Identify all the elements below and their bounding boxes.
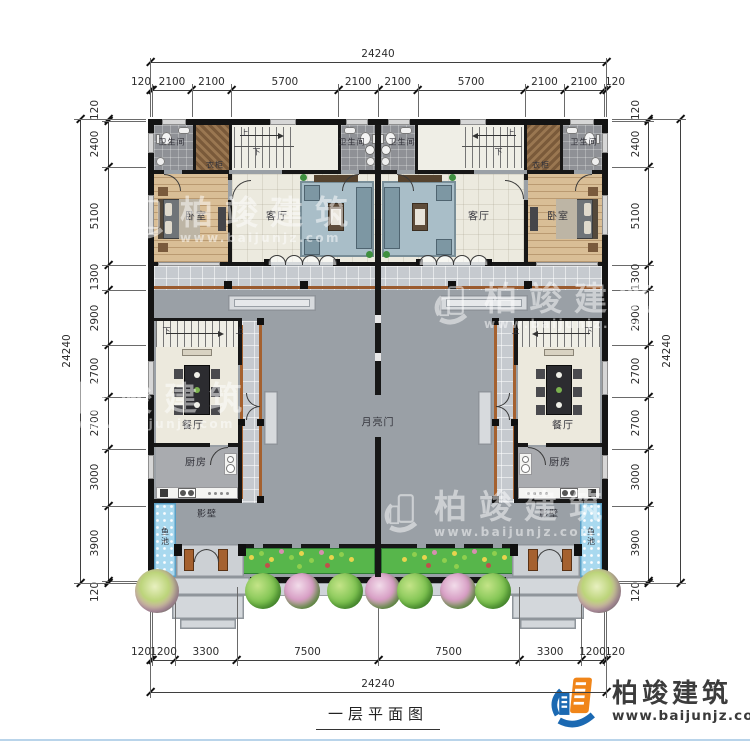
stair-arrow bbox=[166, 333, 218, 334]
extension-line bbox=[612, 583, 686, 584]
wall bbox=[524, 174, 528, 180]
dim-label: 3000 bbox=[630, 464, 642, 491]
extension-line bbox=[564, 84, 565, 117]
overall-dim-label: 24240 bbox=[661, 334, 673, 367]
room-label: 卧室 bbox=[185, 208, 207, 223]
room-label: 下 bbox=[253, 147, 262, 158]
wall bbox=[182, 170, 229, 174]
room-label: 上 bbox=[236, 326, 245, 337]
dwelling-unit bbox=[378, 125, 602, 577]
extension-line bbox=[102, 290, 146, 291]
side-wall-window bbox=[148, 361, 154, 395]
dim-label: 120 bbox=[630, 100, 642, 120]
dim-label: 120 bbox=[605, 646, 625, 658]
wall bbox=[514, 425, 518, 503]
dim-label: 2100 bbox=[384, 76, 411, 88]
dining-chair bbox=[211, 405, 220, 415]
wall bbox=[232, 262, 268, 266]
extension-line bbox=[102, 449, 146, 450]
veranda-column bbox=[448, 281, 456, 289]
plant bbox=[449, 174, 456, 181]
garden-strip bbox=[381, 548, 517, 574]
dim-label: 120 bbox=[630, 582, 642, 602]
extension-line bbox=[612, 119, 686, 120]
extension-line bbox=[74, 119, 146, 120]
bedroom-south-window bbox=[536, 262, 598, 266]
dim-label: 2700 bbox=[630, 409, 642, 436]
bush bbox=[284, 573, 320, 609]
room-label: 鱼池 bbox=[160, 527, 171, 547]
sink bbox=[344, 127, 356, 134]
brand-logo: 柏竣建筑 www.baijunjz.com bbox=[548, 672, 750, 732]
room-label: 月亮门 bbox=[362, 414, 395, 429]
dining-chair bbox=[211, 369, 220, 379]
room-label: 餐厅 bbox=[182, 417, 204, 432]
stair-arrowhead bbox=[532, 331, 538, 337]
overall-dim-label: 24240 bbox=[361, 678, 394, 690]
wall bbox=[415, 125, 418, 170]
wall bbox=[592, 170, 602, 174]
stair-rail bbox=[234, 146, 294, 147]
dining-chair bbox=[211, 387, 220, 397]
room-label: 上 bbox=[241, 128, 250, 139]
sofa-main bbox=[356, 187, 372, 249]
gate-jamb bbox=[238, 544, 246, 556]
dim-label: 120 bbox=[131, 646, 151, 658]
room-label: 客厅 bbox=[468, 208, 490, 223]
dim-label: 2900 bbox=[89, 304, 101, 331]
extension-line bbox=[102, 345, 146, 346]
dim-label: 2700 bbox=[89, 358, 101, 385]
dim-label: 120 bbox=[131, 76, 151, 88]
wall bbox=[338, 125, 341, 170]
dining-chair bbox=[536, 369, 545, 379]
dim-label: 2400 bbox=[630, 131, 642, 158]
dwelling-unit bbox=[154, 125, 378, 577]
armchair bbox=[304, 239, 320, 255]
dining-chair bbox=[174, 387, 183, 397]
bush bbox=[475, 573, 511, 609]
wall bbox=[154, 170, 164, 174]
dining-chair bbox=[174, 405, 183, 415]
burner bbox=[570, 490, 576, 496]
stair-arrowhead bbox=[218, 331, 224, 337]
counter-dots bbox=[208, 492, 211, 495]
corridor-column bbox=[257, 419, 264, 426]
room-label: 卫生间 bbox=[339, 137, 366, 148]
washing-machine bbox=[591, 157, 600, 166]
dim-label: 5100 bbox=[630, 203, 642, 230]
wall bbox=[154, 318, 242, 321]
dim-label: 1200 bbox=[150, 646, 177, 658]
extension-line bbox=[102, 121, 146, 122]
dim-label: 3900 bbox=[89, 530, 101, 557]
top-wall-window bbox=[270, 119, 296, 125]
pillow bbox=[165, 203, 172, 216]
room-label: 卧室 bbox=[547, 208, 569, 223]
wall bbox=[488, 262, 524, 266]
armchair bbox=[436, 239, 452, 255]
overall-dim-line bbox=[150, 62, 606, 63]
dim-label: 2400 bbox=[89, 131, 101, 158]
gate-column bbox=[562, 549, 572, 571]
wall bbox=[282, 170, 341, 174]
dim-label: 2100 bbox=[198, 76, 225, 88]
plant bbox=[383, 251, 390, 258]
plate bbox=[194, 372, 200, 378]
veranda-beam bbox=[378, 286, 602, 289]
burner bbox=[188, 490, 194, 496]
room-label: 餐厅 bbox=[552, 417, 574, 432]
bush bbox=[327, 573, 363, 609]
overall-dim-label: 24240 bbox=[361, 48, 394, 60]
extension-line bbox=[102, 265, 146, 266]
extension-line bbox=[150, 58, 151, 117]
brand-url: www.baijunjz.com bbox=[612, 708, 750, 724]
dining-chair bbox=[174, 369, 183, 379]
kitchen-counter bbox=[156, 487, 238, 499]
wall bbox=[228, 200, 232, 262]
plate bbox=[556, 387, 562, 393]
dim-label: 2100 bbox=[159, 76, 186, 88]
veranda-column bbox=[224, 281, 232, 289]
plate bbox=[556, 372, 562, 378]
drawing-title: 一层平面图 bbox=[316, 703, 440, 730]
bedroom-south-window bbox=[158, 262, 220, 266]
dim-label: 7500 bbox=[294, 646, 321, 658]
washbasin bbox=[365, 145, 375, 155]
dim-label: 2100 bbox=[345, 76, 372, 88]
overall-dim-line bbox=[80, 119, 81, 583]
garden-strip bbox=[239, 548, 375, 574]
room-label: 衣柜 bbox=[532, 160, 550, 171]
dining-hutch bbox=[182, 349, 212, 356]
top-wall-window bbox=[570, 119, 594, 125]
room-label: 厨房 bbox=[185, 454, 207, 469]
bush bbox=[397, 573, 433, 609]
watermark-icon bbox=[22, 383, 64, 429]
tv-cabinet bbox=[530, 207, 538, 231]
dimension-line bbox=[648, 119, 649, 583]
room-label: 卫生间 bbox=[571, 137, 598, 148]
room-label: 下 bbox=[585, 326, 594, 337]
side-wall-window bbox=[148, 195, 154, 235]
extension-line bbox=[418, 84, 419, 117]
room-label: 卫生间 bbox=[159, 137, 186, 148]
top-wall-window bbox=[346, 119, 368, 125]
corridor-bench bbox=[264, 391, 278, 445]
dining-chair bbox=[536, 387, 545, 397]
wall bbox=[378, 262, 420, 266]
side-wall-window bbox=[602, 133, 608, 153]
room-label: 卫生间 bbox=[389, 137, 416, 148]
plate bbox=[194, 402, 200, 408]
wall bbox=[527, 170, 574, 174]
stair-arrowhead bbox=[278, 133, 284, 139]
extension-line bbox=[231, 84, 232, 117]
armchair bbox=[304, 185, 320, 201]
side-wall-window bbox=[602, 195, 608, 235]
dim-label: 3300 bbox=[192, 646, 219, 658]
top-wall-window bbox=[162, 119, 186, 125]
entry-steps bbox=[180, 619, 236, 629]
extension-line bbox=[102, 506, 146, 507]
dim-label: 7500 bbox=[435, 646, 462, 658]
room-label: 下 bbox=[163, 326, 172, 337]
extension-line bbox=[612, 121, 654, 122]
entry-steps bbox=[512, 595, 584, 619]
side-wall-window bbox=[148, 133, 154, 153]
wall bbox=[514, 318, 602, 321]
extension-line bbox=[237, 587, 238, 666]
plant bbox=[366, 251, 373, 258]
extension-line bbox=[612, 449, 654, 450]
dim-label: 1200 bbox=[579, 646, 606, 658]
washing-machine bbox=[366, 157, 375, 166]
tv-cabinet bbox=[218, 207, 226, 231]
extension-line bbox=[152, 84, 153, 117]
wall bbox=[524, 125, 527, 170]
overall-dim-label: 24240 bbox=[61, 334, 73, 367]
gate-jamb bbox=[510, 544, 518, 556]
sink bbox=[566, 127, 578, 134]
corridor-column bbox=[492, 318, 499, 325]
extension-line bbox=[192, 84, 193, 117]
extension-line bbox=[606, 58, 607, 117]
extension-line bbox=[519, 587, 520, 666]
floorplan-canvas: 一层平面图 柏竣建筑 www.baijunjz.co bbox=[0, 0, 750, 750]
room-label: 鱼池 bbox=[586, 527, 597, 547]
armchair bbox=[436, 185, 452, 201]
wall bbox=[514, 443, 528, 447]
nightstand bbox=[588, 243, 598, 252]
dining-hutch bbox=[544, 349, 574, 356]
dim-label: 2700 bbox=[630, 358, 642, 385]
dim-label: 3900 bbox=[630, 530, 642, 557]
top-wall-window bbox=[388, 119, 410, 125]
dim-label: 2100 bbox=[571, 76, 598, 88]
dim-label: 3000 bbox=[89, 464, 101, 491]
wall bbox=[560, 125, 563, 170]
room-label: 客厅 bbox=[266, 208, 288, 223]
bush bbox=[577, 569, 621, 613]
corridor-column bbox=[257, 318, 264, 325]
bush bbox=[245, 573, 281, 609]
wall bbox=[546, 443, 602, 447]
wall bbox=[154, 499, 242, 503]
coffee-table-tray bbox=[415, 209, 425, 225]
party-wall-sill bbox=[375, 315, 381, 323]
gate-jamb bbox=[574, 544, 582, 556]
sofa-main bbox=[384, 187, 400, 249]
corridor-bench bbox=[478, 391, 492, 445]
extension-line bbox=[338, 84, 339, 117]
entry-steps bbox=[520, 619, 576, 629]
coffee-table-tray bbox=[331, 209, 341, 225]
pillow bbox=[165, 221, 172, 234]
dining-chair bbox=[573, 369, 582, 379]
pillow bbox=[584, 221, 591, 234]
extension-line bbox=[612, 397, 654, 398]
dim-label: 120 bbox=[89, 582, 101, 602]
corridor-column bbox=[492, 419, 499, 426]
bed-headboard bbox=[593, 199, 598, 239]
wall bbox=[228, 443, 242, 447]
dim-label: 3300 bbox=[537, 646, 564, 658]
wall bbox=[524, 200, 528, 262]
extension-line bbox=[102, 397, 146, 398]
stair-rail bbox=[462, 146, 522, 147]
dim-label: 2700 bbox=[89, 409, 101, 436]
dim-label: 1300 bbox=[630, 264, 642, 291]
dim-label: 2100 bbox=[531, 76, 558, 88]
room-label: 厨房 bbox=[549, 454, 571, 469]
room-label: 上 bbox=[507, 128, 516, 139]
veranda-beam bbox=[154, 286, 378, 289]
plate bbox=[556, 402, 562, 408]
footer-rule bbox=[0, 739, 750, 741]
bush bbox=[365, 573, 401, 609]
sink bbox=[178, 127, 190, 134]
dim-label: 1300 bbox=[89, 264, 101, 291]
courtyard-bench-inner bbox=[446, 299, 522, 307]
dim-label: 5100 bbox=[89, 203, 101, 230]
kitchen-appliance bbox=[588, 489, 596, 497]
room-label: 衣柜 bbox=[206, 160, 224, 171]
dimension-line bbox=[108, 119, 109, 583]
pillow bbox=[584, 203, 591, 216]
overall-dim-line bbox=[680, 119, 681, 583]
plant bbox=[300, 174, 307, 181]
dining-chair bbox=[573, 387, 582, 397]
bush bbox=[440, 573, 476, 609]
veranda-column bbox=[524, 281, 532, 289]
wall bbox=[193, 125, 196, 170]
wall bbox=[154, 443, 210, 447]
counter-dots bbox=[545, 492, 548, 495]
bush bbox=[135, 569, 179, 613]
sink-bowl bbox=[227, 456, 234, 463]
room-label: 影壁 bbox=[539, 507, 559, 520]
room-label: 影壁 bbox=[197, 507, 217, 520]
garden-flowers bbox=[249, 555, 254, 560]
courtyard-bench-inner bbox=[234, 299, 310, 307]
gate-jamb bbox=[174, 544, 182, 556]
corridor-column bbox=[492, 496, 499, 503]
gate-column bbox=[218, 549, 228, 571]
stair-arrow bbox=[538, 333, 590, 334]
dim-label: 2900 bbox=[630, 304, 642, 331]
veranda-column bbox=[300, 281, 308, 289]
overall-dim-line bbox=[150, 692, 606, 693]
extension-line bbox=[612, 167, 654, 168]
gate-column bbox=[184, 549, 194, 571]
dining-chair bbox=[536, 405, 545, 415]
extension-line bbox=[612, 345, 654, 346]
dim-label: 120 bbox=[89, 100, 101, 120]
wall bbox=[229, 125, 232, 170]
garden-flowers bbox=[502, 555, 507, 560]
top-wall-window bbox=[460, 119, 486, 125]
kitchen-appliance bbox=[160, 489, 168, 497]
brand-name: 柏竣建筑 bbox=[612, 680, 750, 709]
dining-chair bbox=[573, 405, 582, 415]
extension-line bbox=[102, 167, 146, 168]
dim-label: 5700 bbox=[272, 76, 299, 88]
party-wall bbox=[375, 125, 381, 577]
burner bbox=[180, 490, 186, 496]
wall bbox=[228, 174, 232, 180]
wall bbox=[238, 425, 242, 503]
room-label: 上 bbox=[512, 326, 521, 337]
corridor-column bbox=[257, 496, 264, 503]
washing-machine bbox=[156, 157, 165, 166]
stair-arrowhead bbox=[472, 133, 478, 139]
nightstand bbox=[158, 243, 168, 252]
extension-line bbox=[612, 506, 654, 507]
wall bbox=[336, 262, 378, 266]
entry-steps bbox=[172, 595, 244, 619]
extension-line bbox=[378, 84, 379, 117]
side-wall-window bbox=[602, 361, 608, 395]
side-wall-window bbox=[602, 455, 608, 479]
party-wall-sill bbox=[375, 353, 381, 361]
extension-line bbox=[525, 84, 526, 117]
sink bbox=[400, 127, 412, 134]
washing-machine bbox=[381, 157, 390, 166]
dim-label: 5700 bbox=[458, 76, 485, 88]
dim-label: 120 bbox=[605, 76, 625, 88]
wall bbox=[415, 170, 474, 174]
room-label: 下 bbox=[495, 147, 504, 158]
burner bbox=[562, 490, 568, 496]
side-wall-window bbox=[148, 455, 154, 479]
plate bbox=[194, 387, 200, 393]
brand-logo-icon bbox=[548, 672, 604, 732]
wall bbox=[514, 499, 602, 503]
